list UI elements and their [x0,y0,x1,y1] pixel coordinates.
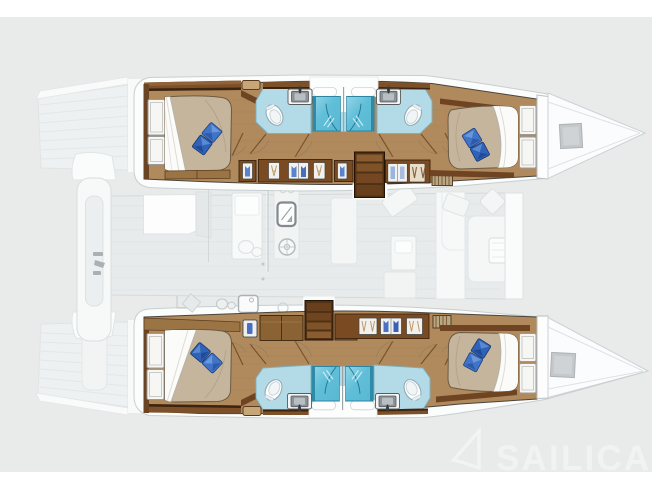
svg-text:SAILICA: SAILICA [496,439,651,478]
